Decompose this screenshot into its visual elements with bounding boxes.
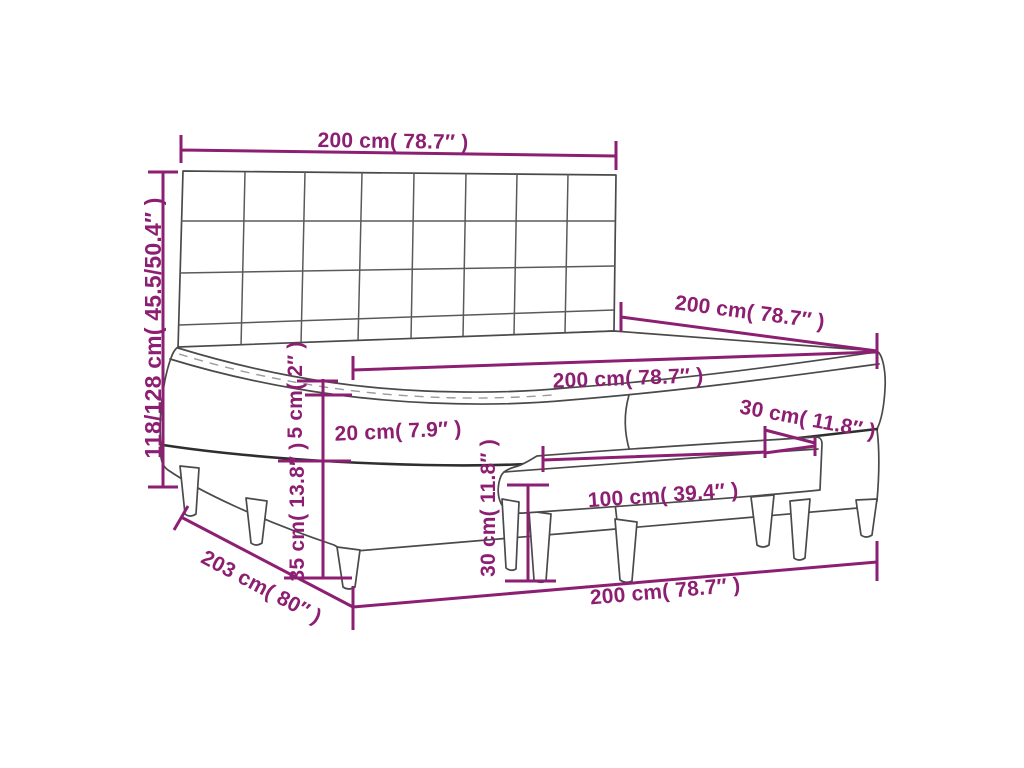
topper-height-label: 5 cm( 2″ ) bbox=[284, 341, 307, 438]
bed-dimension-diagram: 200 cm( 78.7″ ) 118/128 cm( 45.5/50.4″ )… bbox=[0, 0, 1024, 768]
overall-height-label: 118/128 cm( 45.5/50.4″ ) bbox=[140, 197, 166, 458]
bed-leg bbox=[246, 498, 267, 545]
bench-height-label: 30 cm( 11.8″ ) bbox=[477, 439, 500, 577]
bench-leg bbox=[751, 495, 774, 547]
dimension-diagram-page: 200 cm( 78.7″ ) 118/128 cm( 45.5/50.4″ )… bbox=[0, 0, 1024, 768]
bed-leg bbox=[180, 466, 199, 516]
base-height-label: 35 cm( 13.8″ ) bbox=[286, 443, 309, 582]
bench-leg bbox=[502, 499, 519, 570]
headboard bbox=[178, 171, 616, 349]
bed-leg bbox=[856, 499, 877, 537]
bench-leg bbox=[529, 511, 551, 582]
dim-headboard-width: 200 cm( 78.7″ ) bbox=[181, 129, 616, 170]
bed-leg bbox=[337, 547, 360, 589]
bench-leg bbox=[615, 519, 637, 582]
headboard-width-label: 200 cm( 78.7″ ) bbox=[317, 129, 468, 154]
bench-leg bbox=[790, 499, 810, 560]
